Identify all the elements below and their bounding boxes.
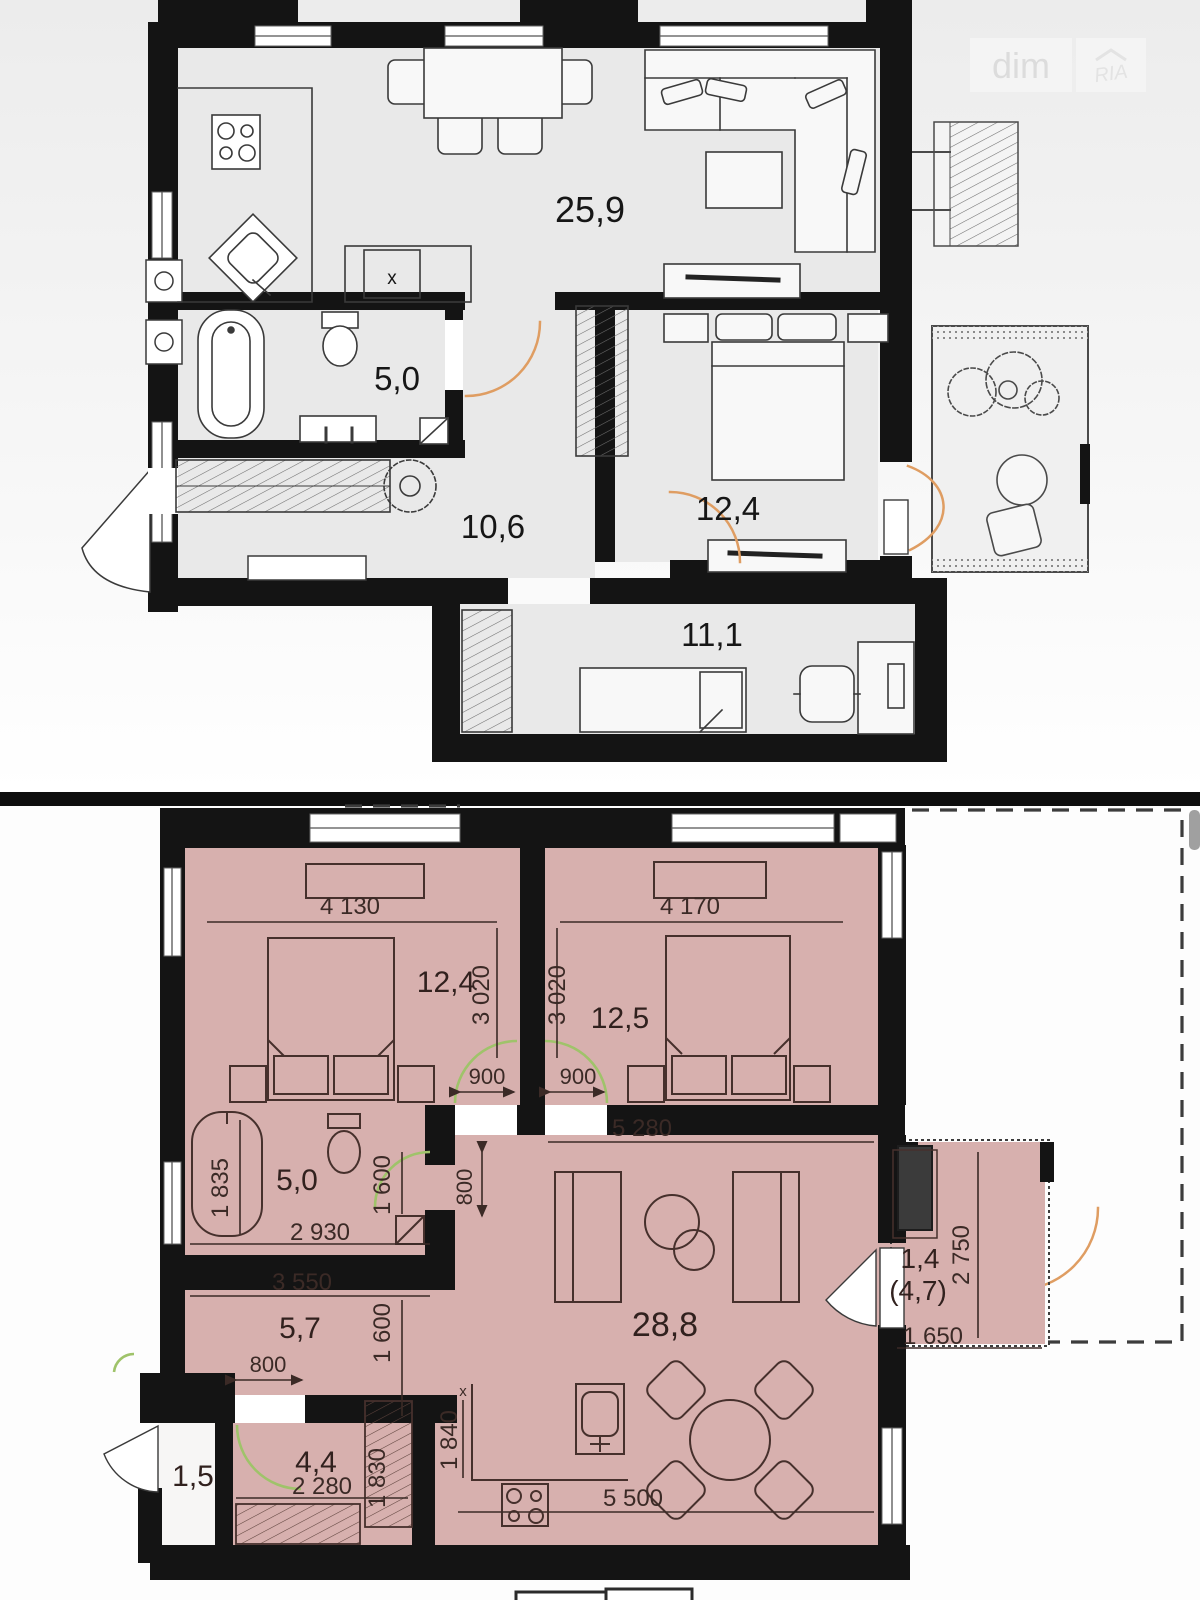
watermark: dim RIA bbox=[970, 38, 1146, 92]
wardrobe-icon bbox=[576, 306, 628, 456]
dimension-label: 3 550 bbox=[272, 1269, 332, 1296]
wardrobe-icon bbox=[462, 610, 512, 732]
dimension-label: 900 bbox=[469, 1064, 506, 1089]
dimension-label: 800 bbox=[452, 1169, 477, 1206]
dimension-label: 1 830 bbox=[364, 1448, 391, 1508]
dimension-label: 1 650 bbox=[903, 1323, 963, 1350]
room-area-label: 5,7 bbox=[279, 1312, 321, 1345]
dimension-label: 1 835 bbox=[207, 1158, 234, 1218]
room-area-label: 25,9 bbox=[555, 189, 625, 230]
dimension-label: 5 500 bbox=[603, 1485, 663, 1512]
shelving-icon bbox=[236, 1504, 360, 1544]
dimension-label: 2 930 bbox=[290, 1219, 350, 1246]
pillow-icon bbox=[778, 314, 836, 340]
dimension-label: 4 170 bbox=[660, 893, 720, 920]
dimension-label: 1 840 bbox=[436, 1410, 463, 1470]
scrollbar-thumb[interactable] bbox=[1189, 810, 1200, 850]
floor-plan-screenshot: dim RIA bbox=[0, 0, 1200, 1600]
room-area-label: 28,8 bbox=[632, 1306, 698, 1344]
washing-machine-icon bbox=[420, 418, 448, 444]
room-area-label: 12,4 bbox=[417, 966, 475, 999]
room-area-label: 12,4 bbox=[696, 490, 760, 527]
room-area-label: 4,4 bbox=[295, 1446, 337, 1479]
room-area-label: 1,4 bbox=[901, 1243, 940, 1274]
dimension-label: 900 bbox=[560, 1064, 597, 1089]
dimension-label: 5 280 bbox=[612, 1115, 672, 1142]
tick-mark: x bbox=[459, 1383, 467, 1400]
dimension-label: 1 600 bbox=[369, 1155, 396, 1215]
tv-stand-icon bbox=[664, 264, 800, 298]
room-area-label: 10,6 bbox=[461, 508, 525, 545]
desk-chair-icon bbox=[800, 666, 854, 722]
watermark-logo: RIA bbox=[1093, 61, 1129, 87]
nightstand-icon bbox=[848, 314, 888, 342]
floor-plans-canvas: dim RIA bbox=[0, 0, 1200, 1600]
entrance-door-opening bbox=[148, 468, 178, 514]
legend-table-partial bbox=[516, 1589, 692, 1600]
image-divider bbox=[0, 792, 1200, 806]
bench-icon bbox=[248, 556, 366, 580]
room-area-label: (4,7) bbox=[889, 1275, 947, 1306]
coffee-table-icon bbox=[706, 152, 782, 208]
watermark-brand: dim bbox=[992, 45, 1050, 86]
vanity-sink-icon bbox=[300, 416, 376, 442]
kitchen-cabinet-mark: x bbox=[387, 268, 397, 289]
balcony-hatch-top bbox=[932, 326, 1088, 342]
room-area-label: 5,0 bbox=[374, 360, 420, 397]
toilet-icon bbox=[322, 312, 358, 366]
nightstand-icon bbox=[664, 314, 708, 342]
upper-balcony bbox=[932, 326, 1090, 572]
balcony-hatch-bottom bbox=[932, 556, 1088, 572]
room-area-label: 12,5 bbox=[591, 1002, 649, 1035]
pillow-icon bbox=[716, 314, 772, 340]
dimension-label: 4 130 bbox=[320, 893, 380, 920]
room-area-label: 1,5 bbox=[172, 1460, 214, 1493]
dimension-label: 2 750 bbox=[948, 1225, 975, 1285]
desk-icon bbox=[858, 642, 914, 734]
wardrobe-icon bbox=[176, 460, 390, 512]
dimension-label: 1 600 bbox=[369, 1303, 396, 1363]
balcony-table-icon bbox=[997, 455, 1047, 505]
room-area-label: 11,1 bbox=[681, 616, 743, 653]
bed-icon bbox=[712, 342, 844, 480]
dimension-label: 3 020 bbox=[544, 965, 571, 1025]
dimension-label: 800 bbox=[250, 1352, 287, 1377]
room-area-label: 5,0 bbox=[276, 1164, 318, 1197]
ac-unit-icon bbox=[898, 1146, 932, 1230]
stove-icon bbox=[212, 115, 260, 169]
pillow-icon bbox=[700, 672, 742, 728]
balcony-door-leaf bbox=[884, 500, 908, 554]
